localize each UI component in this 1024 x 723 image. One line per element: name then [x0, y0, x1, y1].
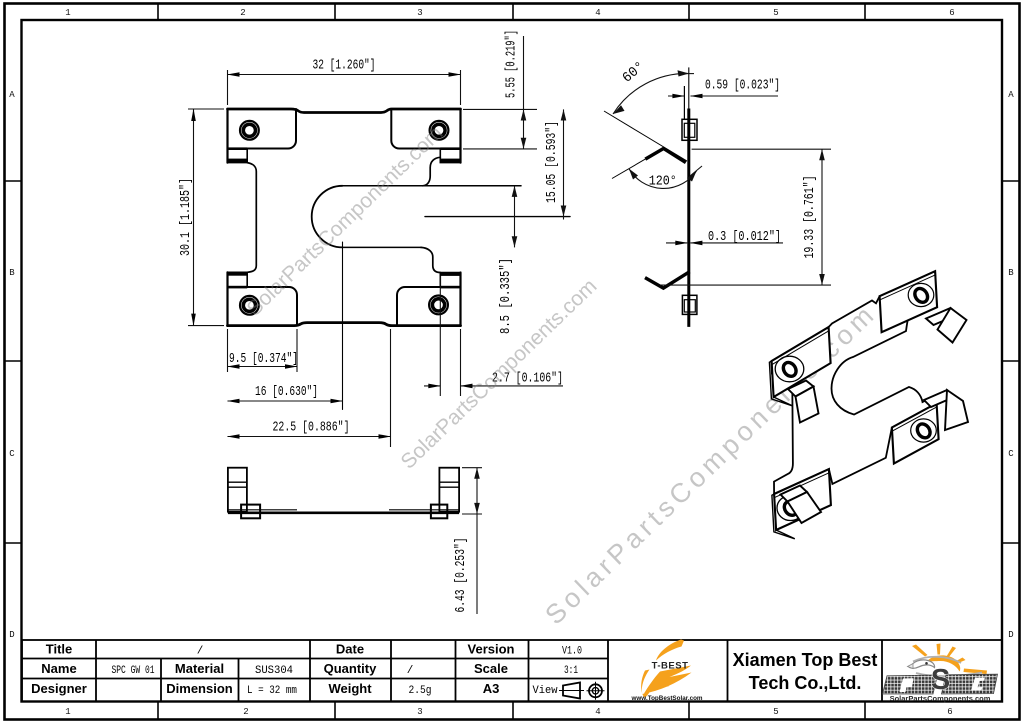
svg-text:3: 3 — [417, 707, 422, 717]
svg-text:4: 4 — [595, 8, 600, 18]
svg-text:Date: Date — [336, 642, 364, 657]
svg-text:32 [1.260″]: 32 [1.260″] — [313, 58, 376, 74]
svg-text:SUS304: SUS304 — [255, 665, 293, 677]
svg-text:Scale: Scale — [474, 661, 508, 676]
svg-text:2: 2 — [243, 707, 248, 717]
svg-text:5: 5 — [773, 8, 778, 18]
svg-text:120°: 120° — [649, 174, 677, 190]
svg-text:Xiamen Top Best: Xiamen Top Best — [733, 650, 878, 670]
svg-text:A: A — [9, 90, 15, 100]
svg-text:6: 6 — [949, 8, 954, 18]
svg-text:B: B — [9, 268, 15, 278]
svg-text:Weight: Weight — [328, 681, 372, 696]
svg-text:Designer: Designer — [31, 681, 87, 696]
svg-text:22.5 [0.886″]: 22.5 [0.886″] — [273, 420, 350, 436]
svg-text:View: View — [533, 685, 558, 697]
svg-text:Title: Title — [46, 642, 73, 657]
svg-text:8.5 [0.335″]: 8.5 [0.335″] — [498, 258, 514, 334]
svg-text:1: 1 — [65, 707, 70, 717]
svg-text:C: C — [9, 449, 15, 459]
svg-text:Material: Material — [175, 661, 224, 676]
svg-text:5: 5 — [773, 707, 778, 717]
svg-text:30.1 [1.185″]: 30.1 [1.185″] — [178, 178, 194, 256]
svg-text:/: / — [407, 665, 414, 677]
svg-text:C: C — [1008, 449, 1014, 459]
svg-text:B: B — [1008, 268, 1014, 278]
svg-text:S: S — [931, 664, 950, 696]
svg-text:1: 1 — [65, 8, 70, 18]
svg-text:A3: A3 — [483, 681, 500, 696]
svg-text:2: 2 — [240, 8, 245, 18]
svg-text:www.TopBestSolar.com: www.TopBestSolar.com — [630, 695, 702, 702]
svg-text:SPC GW 01: SPC GW 01 — [112, 665, 155, 677]
svg-text:Tech Co.,Ltd.: Tech Co.,Ltd. — [749, 673, 862, 693]
svg-text:Dimension: Dimension — [166, 681, 233, 696]
svg-text:9.5 [0.374″]: 9.5 [0.374″] — [229, 351, 298, 367]
svg-text:19.33 [0.761″]: 19.33 [0.761″] — [802, 176, 818, 259]
svg-text:SolarPartsComponents.com: SolarPartsComponents.com — [890, 694, 991, 703]
svg-text:T-BEST: T-BEST — [652, 661, 689, 672]
svg-text:0.3 [0.012″]: 0.3 [0.012″] — [708, 229, 781, 245]
svg-text:5.55 [0.219″]: 5.55 [0.219″] — [504, 30, 520, 98]
svg-text:L = 32 mm: L = 32 mm — [247, 685, 297, 697]
svg-text:4: 4 — [595, 707, 600, 717]
svg-text:2.5g: 2.5g — [409, 685, 432, 697]
svg-text:15.05 [0.593″]: 15.05 [0.593″] — [544, 121, 560, 203]
svg-text:16 [0.630″]: 16 [0.630″] — [255, 384, 318, 400]
svg-text:Quantity: Quantity — [324, 661, 377, 676]
svg-text:6: 6 — [947, 707, 952, 717]
svg-text:Name: Name — [41, 661, 76, 676]
svg-text:3:1: 3:1 — [564, 665, 578, 677]
svg-text:A: A — [1008, 90, 1014, 100]
svg-text:/: / — [197, 646, 204, 658]
svg-text:D: D — [1008, 630, 1013, 640]
svg-text:0.59 [0.023″]: 0.59 [0.023″] — [705, 78, 780, 94]
svg-text:Version: Version — [468, 642, 515, 657]
svg-text:V1.0: V1.0 — [562, 646, 582, 658]
svg-text:D: D — [9, 630, 14, 640]
svg-text:3: 3 — [417, 8, 422, 18]
svg-text:6.43 [0.253″]: 6.43 [0.253″] — [453, 538, 469, 613]
